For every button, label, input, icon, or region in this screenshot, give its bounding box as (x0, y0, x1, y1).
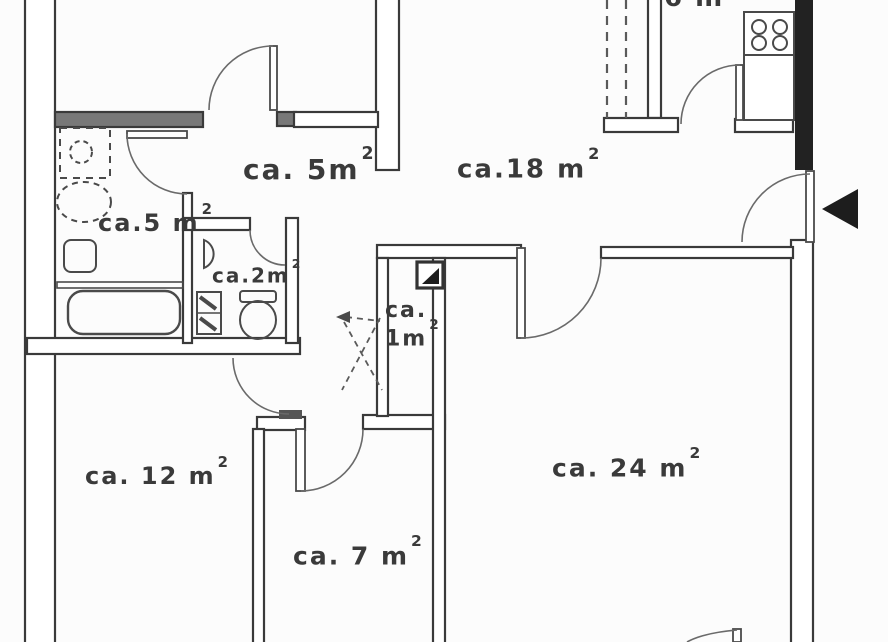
door-leaf-room12 (279, 410, 302, 419)
room-label-wc-text: ca.2m (212, 264, 290, 288)
door-leaf-room24 (517, 248, 525, 338)
wall-left-exterior (25, 0, 55, 642)
door-leaf-kitchen (736, 65, 743, 120)
door-arc-bathroom (127, 134, 187, 194)
wall-top-left-room-bottom (55, 112, 203, 127)
room-label-living: ca.18 m2 (457, 153, 599, 185)
floor-plan-page: ca. 5m2 ca.18 m2 ca.5 m2 ca.2m2 ca. 1m2 … (0, 0, 888, 642)
door-leaf-top-room (270, 46, 277, 110)
vent-arrow-line (346, 317, 380, 321)
kitchen-dashed-partition (607, 0, 626, 118)
room-label-wc-sup: 2 (292, 256, 301, 271)
bathtub-platform-edge (57, 282, 183, 288)
kitchen-fixtures (744, 12, 794, 120)
room-label-room12-sup: 2 (218, 453, 228, 471)
shower-drain-icon (70, 141, 92, 163)
room-label-room24: ca. 24 m2 (552, 453, 700, 482)
room-label-closet-line2-text: 1m (385, 326, 427, 351)
wall-kitchen-bottom-left (604, 118, 678, 132)
room-label-corridor: ca. 5m2 (243, 153, 374, 186)
washbasin-square-icon (64, 240, 96, 272)
duct-hatch-2 (200, 318, 216, 330)
wall-room12-room7 (253, 429, 264, 642)
wall-bathroom-bottom (27, 338, 300, 354)
shower-icon (60, 128, 110, 178)
room-label-bathroom: ca.5 m2 (98, 208, 212, 237)
door-arc-room7 (301, 429, 363, 491)
room-label-closet-sup: 2 (429, 317, 438, 333)
room-label-room12-text: ca. 12 m (85, 462, 216, 490)
room-label-kitchen-clipped: 6 m (664, 0, 724, 13)
floor-plan-drawing (0, 0, 888, 642)
wall-hall-bottom-left (377, 245, 521, 258)
door-arc-room12 (233, 358, 289, 414)
room-label-room24-text: ca. 24 m (552, 453, 687, 482)
room-label-room12: ca. 12 m2 (85, 461, 228, 490)
room-label-corridor-text: ca. 5m (243, 153, 360, 186)
room-label-kitchen-text: 6 m (664, 0, 724, 13)
door-arc-balcony-partial (687, 630, 737, 642)
door-leaf-room7 (296, 429, 305, 491)
shaft-triangle-marker-icon (417, 262, 443, 288)
door-arc-room24 (521, 258, 601, 338)
room-label-room7-text: ca. 7 m (293, 541, 409, 570)
wc-fixtures (197, 240, 276, 339)
toilet-icon (240, 301, 276, 339)
wall-right-exterior-lower (791, 240, 813, 642)
room-label-room24-sup: 2 (689, 444, 700, 462)
room-label-closet: ca. 1m2 (385, 297, 439, 352)
door-leaf-entrance (806, 171, 814, 242)
wall-top-room-bottom-right (294, 112, 378, 127)
entrance-arrow-icon (822, 189, 858, 229)
door-arc-kitchen (681, 65, 740, 124)
room-label-room7: ca. 7 m2 (293, 541, 422, 570)
duct-hatch-1 (200, 297, 216, 309)
wall-kitchen-left (648, 0, 661, 118)
bathtub-icon (68, 291, 180, 334)
room-label-living-sup: 2 (588, 144, 599, 163)
door-arc-entrance (742, 174, 810, 242)
door-arc-top-room (209, 46, 273, 110)
room-label-living-text: ca.18 m (457, 155, 586, 185)
shaft-marker (417, 262, 443, 288)
room-label-bathroom-sup: 2 (202, 200, 212, 218)
room-label-room7-sup: 2 (411, 532, 422, 550)
vent-arrowhead (336, 311, 350, 323)
door-leaf-bathroom (127, 131, 187, 138)
room-label-bathroom-text: ca.5 m (98, 209, 200, 237)
room-label-wc: ca.2m2 (212, 263, 300, 288)
door-arc-wc (250, 230, 285, 265)
room-label-closet-line2: 1m2 (385, 325, 439, 353)
wall-top-room-divider (376, 0, 399, 170)
room-label-corridor-sup: 2 (362, 144, 374, 164)
wall-hall-bottom-right (601, 247, 793, 258)
wall-right-exterior-upper-black (795, 0, 813, 170)
stove-4-burner-icon (744, 12, 794, 55)
